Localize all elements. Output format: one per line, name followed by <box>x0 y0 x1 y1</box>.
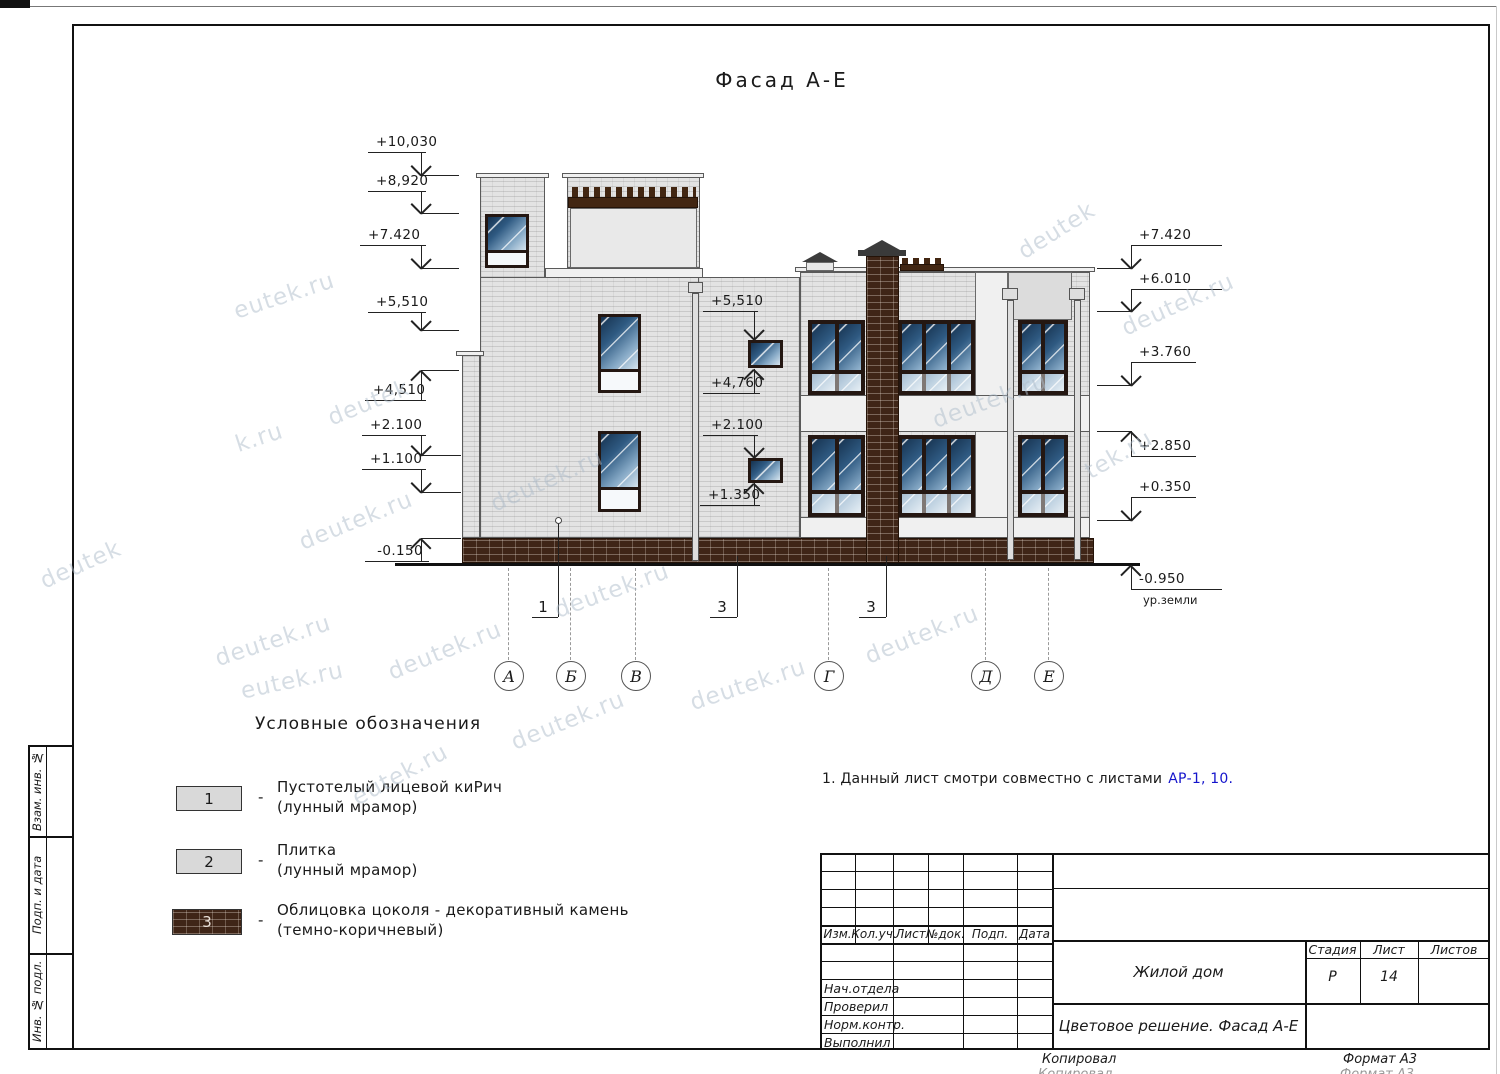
stamp-stage-header: Лист <box>1360 940 1418 958</box>
drawing-sheet: Фасад А-Е <box>0 0 1500 1074</box>
stamp-project-name: Жилой дом <box>1052 940 1305 1003</box>
stamp-col-header: Кол.уч. <box>855 925 893 943</box>
stamp-stage-value: 14 <box>1360 962 1418 992</box>
stamp-col-header: Дата <box>1017 925 1052 943</box>
stamp-stage-value <box>1418 962 1490 992</box>
stamp-col-header: №док. <box>928 925 963 943</box>
stamp-col-header: Изм. <box>820 925 855 943</box>
stamp-stage-header: Стадия <box>1305 940 1360 958</box>
stamp-col-header: Подп. <box>963 925 1017 943</box>
stamp-stage-value: Р <box>1305 962 1360 992</box>
stamp-doc-title: Цветовое решение. Фасад А-Е <box>1052 1003 1305 1048</box>
stamp-col-header: Лист <box>893 925 928 943</box>
stamp-role-label: Норм.контр. <box>824 1015 892 1033</box>
stamp-role-label: Нач.отдела <box>824 979 892 997</box>
stamp-role-label: Выполнил <box>824 1033 892 1051</box>
title-block: Изм.Кол.уч.Лист№док.Подп.ДатаНач.отделаП… <box>0 0 1500 1074</box>
stamp-stage-header: Листов <box>1418 940 1490 958</box>
stamp-role-label: Проверил <box>824 997 892 1015</box>
